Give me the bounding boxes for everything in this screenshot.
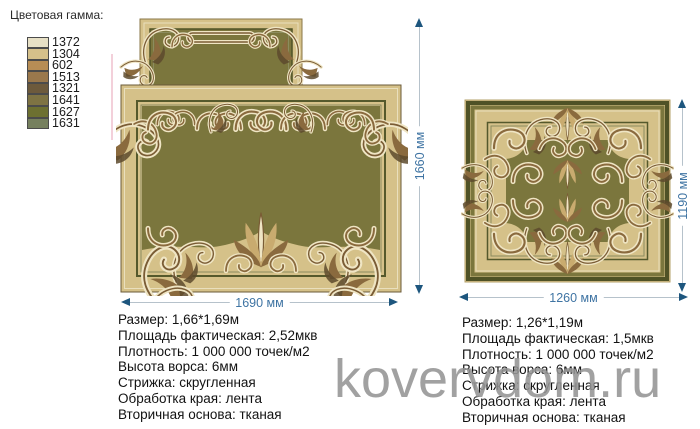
width-dimension-label: 1260 мм (543, 291, 603, 305)
color-swatch (27, 71, 49, 83)
spec-line: Площадь фактическая: 2,52мкв (118, 328, 317, 344)
left-rug-graphic (116, 14, 408, 296)
color-swatch (27, 37, 49, 49)
arrow-up-icon (415, 18, 423, 27)
palette-row: 1631 (27, 118, 103, 130)
left-rug-height-dimension: 1660 мм (413, 18, 427, 294)
arrow-left-icon (459, 293, 468, 301)
arrow-down-icon (415, 285, 423, 294)
height-dimension-label: 1660 мм (413, 126, 427, 186)
spec-line: Плотность: 1 000 000 точек/м2 (118, 344, 317, 360)
color-swatch (27, 94, 49, 106)
spec-line: Стрижка: скругленная (118, 375, 317, 391)
color-swatch (27, 118, 49, 130)
arrow-right-icon (389, 298, 398, 306)
site-watermark: kovervdom.ru (334, 348, 661, 410)
width-dimension-label: 1690 мм (229, 296, 289, 310)
height-dimension-label: 1190 мм (676, 166, 690, 226)
color-swatch (27, 83, 49, 95)
right-rug-graphic (461, 96, 674, 286)
spec-line: Обработка края: лента (118, 391, 317, 407)
color-swatch (27, 48, 49, 60)
palette-title: Цветовая гамма: (10, 8, 103, 22)
right-rug-height-dimension: 1190 мм (676, 99, 690, 292)
scan-artifact-line (111, 54, 113, 140)
spec-line: Вторичная основа: тканая (462, 410, 654, 426)
arrow-up-icon (678, 99, 686, 108)
right-rug-width-dimension: 1260 мм (459, 291, 688, 305)
color-swatch (27, 106, 49, 118)
left-rug-specs: Размер: 1,66*1,69м Площадь фактическая: … (118, 312, 317, 423)
green-center-panel (506, 140, 629, 242)
arrow-left-icon (121, 298, 130, 306)
arrow-right-icon (679, 293, 688, 301)
left-rug-main-section (116, 85, 408, 296)
palette-swatch-column: 1372 1304 602 1513 1321 1641 1627 1631 (27, 37, 103, 130)
color-swatch (27, 60, 49, 72)
spec-line: Площадь фактическая: 1,5мкв (462, 331, 654, 347)
left-rug-width-dimension: 1690 мм (121, 296, 398, 310)
arrow-down-icon (678, 283, 686, 292)
spec-line: Высота ворса: 6мм (118, 359, 317, 375)
carpet-spec-sheet: Цветовая гамма: 1372 1304 602 1513 1321 … (0, 0, 700, 429)
spec-line: Размер: 1,26*1,19м (462, 315, 654, 331)
color-palette: Цветовая гамма: 1372 1304 602 1513 1321 … (10, 8, 103, 130)
spec-line: Вторичная основа: тканая (118, 407, 317, 423)
spec-line: Размер: 1,66*1,69м (118, 312, 317, 328)
color-code: 1631 (52, 118, 80, 130)
